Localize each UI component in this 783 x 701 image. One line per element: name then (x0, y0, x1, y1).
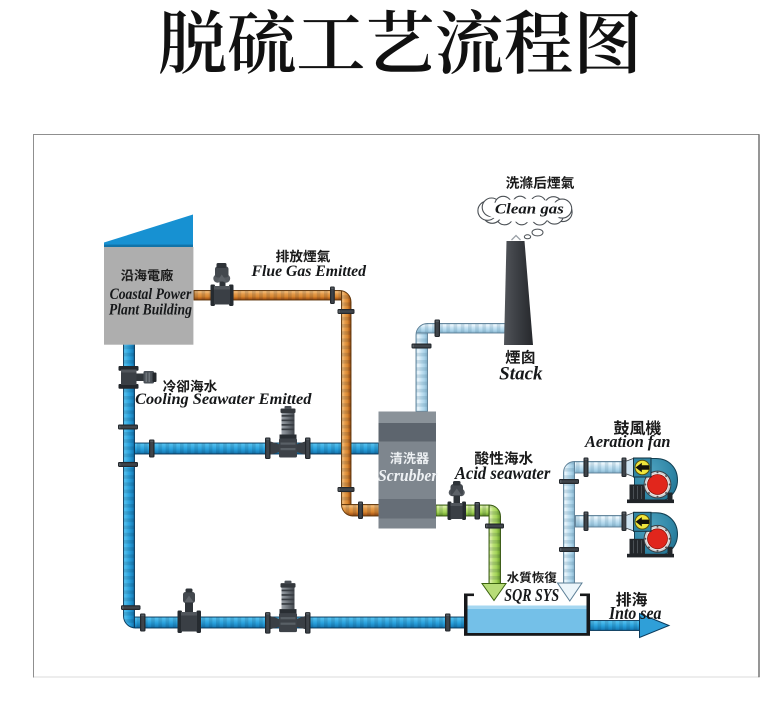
svg-text:Aeration fan: Aeration fan (584, 432, 670, 451)
svg-text:Coastal Power: Coastal Power (110, 286, 192, 303)
svg-text:Cooling Seawater Emitted: Cooling Seawater Emitted (135, 391, 312, 408)
svg-text:Scrubber: Scrubber (378, 466, 438, 485)
svg-text:Plant Building: Plant Building (108, 302, 192, 319)
svg-text:Flue Gas Emitted: Flue Gas Emitted (251, 263, 367, 280)
svg-text:Acid seawater: Acid seawater (454, 463, 551, 483)
svg-text:Stack: Stack (499, 365, 543, 385)
svg-text:SQR SYS: SQR SYS (504, 585, 559, 605)
svg-text:Clean gas: Clean gas (495, 202, 564, 218)
svg-text:Into sea: Into sea (608, 603, 662, 623)
